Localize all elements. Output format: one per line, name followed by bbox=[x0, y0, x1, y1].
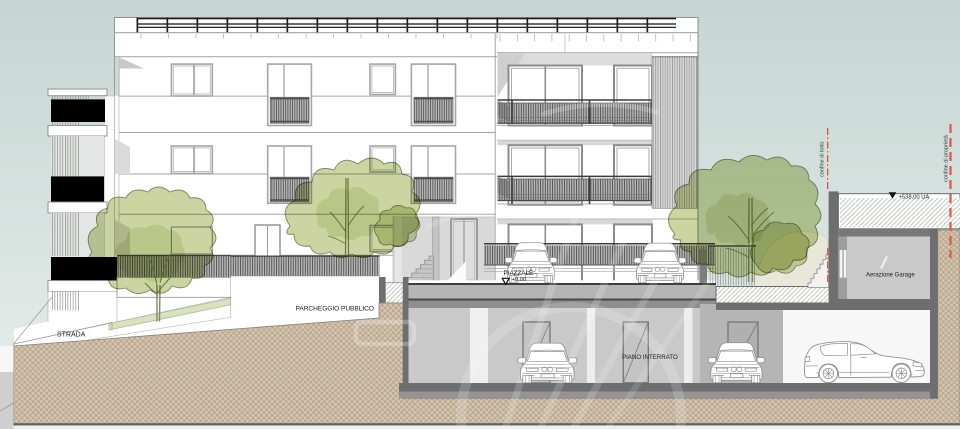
svg-text:+0,00: +0,00 bbox=[512, 277, 527, 283]
svg-text:STRADA: STRADA bbox=[57, 332, 86, 339]
svg-text:confine di lotto: confine di lotto bbox=[820, 142, 826, 177]
svg-text:Aerazione Garage: Aerazione Garage bbox=[866, 272, 915, 278]
svg-text:PARCHEGGIO PUBBLICO: PARCHEGGIO PUBBLICO bbox=[296, 306, 374, 313]
svg-text:PIANO INTERRATO: PIANO INTERRATO bbox=[622, 354, 678, 361]
svg-text:PIAZZALE: PIAZZALE bbox=[504, 270, 534, 277]
svg-text:confine di proprietà: confine di proprietà bbox=[944, 134, 950, 182]
svg-text:+538,00 UA: +538,00 UA bbox=[899, 194, 930, 200]
